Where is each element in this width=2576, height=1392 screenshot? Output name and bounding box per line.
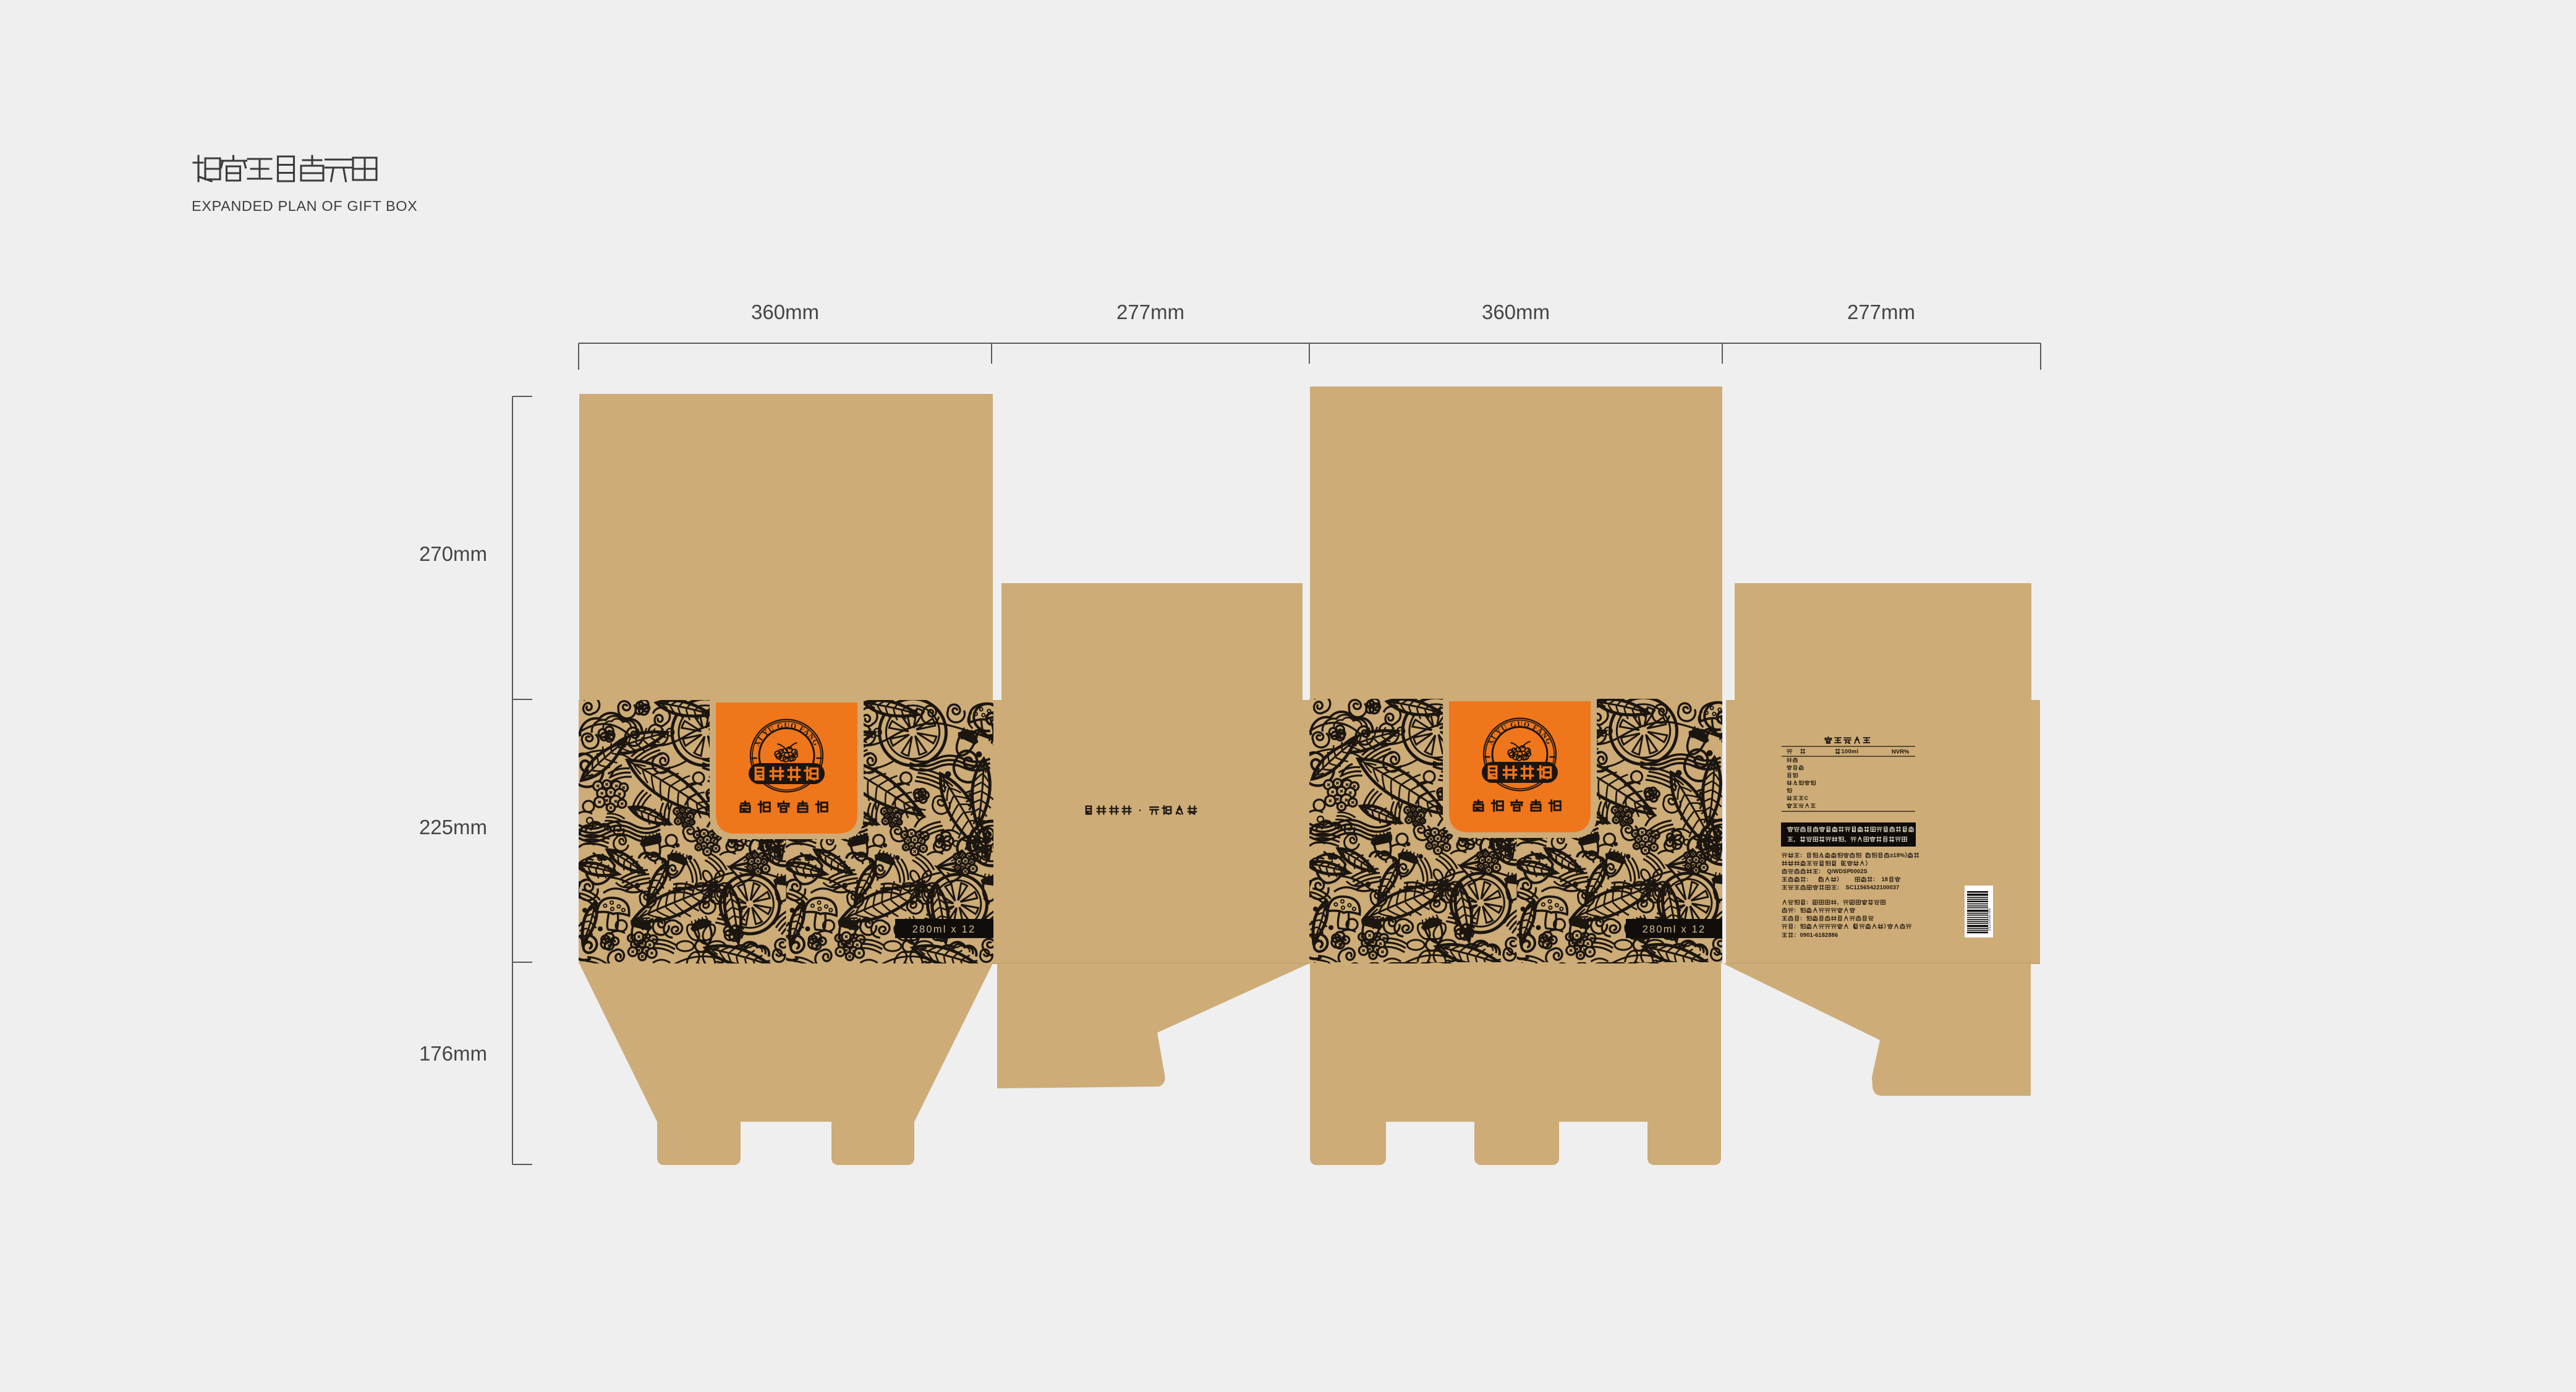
svg-text:NVR%: NVR% bbox=[1892, 749, 1910, 756]
svg-text:0901-6182886: 0901-6182886 bbox=[1800, 932, 1838, 938]
svg-text:277mm: 277mm bbox=[1847, 301, 1915, 323]
svg-text:0002S: 0002S bbox=[1850, 868, 1868, 874]
svg-text:360mm: 360mm bbox=[751, 301, 819, 323]
svg-text::: : bbox=[1873, 876, 1875, 882]
svg-text:277mm: 277mm bbox=[1116, 301, 1184, 323]
svg-text::: : bbox=[1806, 876, 1808, 882]
svg-text::: : bbox=[1794, 923, 1796, 929]
svg-text:280ml x 12: 280ml x 12 bbox=[1643, 924, 1706, 935]
svg-text::: : bbox=[1794, 907, 1796, 913]
svg-text:225mm: 225mm bbox=[419, 816, 487, 839]
svg-text:100ml: 100ml bbox=[1842, 748, 1859, 754]
svg-text:,: , bbox=[1793, 836, 1795, 843]
svg-text:≥18%）: ≥18%） bbox=[1890, 852, 1911, 858]
svg-text::: : bbox=[1794, 932, 1796, 938]
svg-text::: : bbox=[1806, 899, 1808, 905]
svg-text::: : bbox=[1837, 884, 1839, 890]
svg-text:）: ） bbox=[1866, 860, 1871, 866]
svg-text::: : bbox=[1800, 915, 1802, 921]
svg-text:Q/WDSP: Q/WDSP bbox=[1827, 868, 1851, 874]
svg-text:0123456789: 0123456789 bbox=[1987, 908, 1992, 931]
svg-text:18: 18 bbox=[1882, 876, 1889, 882]
svg-text:360mm: 360mm bbox=[1482, 301, 1550, 323]
svg-text::: : bbox=[1819, 868, 1821, 874]
svg-text:270mm: 270mm bbox=[419, 542, 487, 565]
svg-text:）: ） bbox=[1837, 876, 1842, 882]
svg-text:,: , bbox=[1837, 899, 1839, 905]
svg-text:280ml x 12: 280ml x 12 bbox=[912, 924, 976, 935]
svg-text:SC11565422100037: SC11565422100037 bbox=[1846, 884, 1900, 890]
svg-text:176mm: 176mm bbox=[419, 1042, 487, 1065]
svg-text:·: · bbox=[1139, 805, 1143, 816]
svg-text:EXPANDED PLAN OF GIFT BOX: EXPANDED PLAN OF GIFT BOX bbox=[192, 198, 417, 214]
svg-text::: : bbox=[1800, 852, 1802, 858]
svg-text:C: C bbox=[1804, 795, 1808, 801]
svg-text:,: , bbox=[1844, 836, 1846, 843]
